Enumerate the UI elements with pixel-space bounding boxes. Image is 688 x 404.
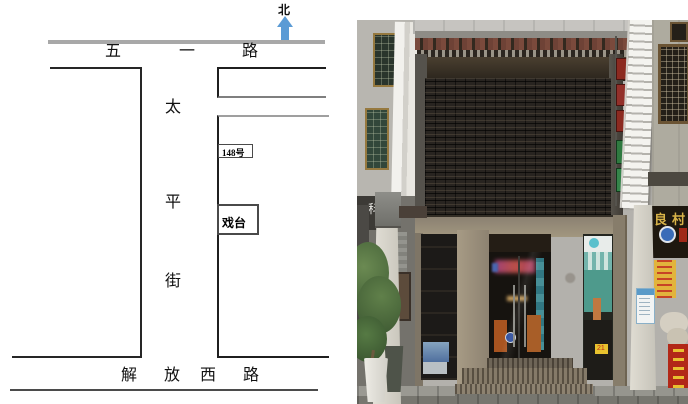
house-number-box: 148号 [218, 144, 253, 158]
north-arrow-icon [277, 16, 293, 27]
rolling-shutter [425, 78, 611, 218]
liangcun-sign-label: 良村 [654, 209, 688, 228]
road-line-jiefang [10, 389, 318, 391]
person-figure [593, 298, 601, 322]
stage-box: 戏台 [217, 204, 259, 235]
road-bottom-char: 解 [121, 368, 137, 384]
notice-header-band [637, 289, 654, 295]
road-bottom-char: 放 [164, 368, 180, 384]
right-small-window [670, 22, 688, 42]
right-awning-bar [648, 172, 688, 186]
road-top-char: 路 [242, 44, 258, 60]
liangcun-red-tab [679, 228, 687, 242]
roof-tile-row [415, 38, 635, 50]
red-promo-sign [668, 344, 688, 388]
teal-logo-circle [589, 238, 599, 248]
price-tag: 21 [595, 344, 608, 354]
stage-label: 戏台 [222, 214, 246, 231]
storefront-photo: 科 [357, 20, 688, 404]
left-window-lower [365, 108, 389, 170]
liangcun-signboard: 良村 [650, 206, 688, 258]
utility-box [375, 192, 401, 228]
notice-paper [636, 288, 655, 324]
roof-ridge [415, 31, 635, 38]
street-char: 街 [165, 274, 181, 290]
yellow-menu-sign [654, 260, 676, 298]
west-block-outline [50, 67, 142, 357]
west-block-bottom-line [12, 356, 142, 358]
road-bottom-char: 路 [243, 368, 259, 384]
figure-canvas: 北 五 一 路 148号 戏台 太 平 街 解 放 西 路 [0, 0, 688, 404]
road-bottom-char: 西 [200, 368, 216, 384]
roof-eave-zigzag [417, 50, 633, 57]
sign-bracket [399, 206, 427, 218]
road-top-char: 五 [105, 44, 121, 60]
right-lattice-window [658, 44, 688, 124]
street-char: 平 [165, 195, 181, 211]
notice-text-lines [639, 298, 650, 318]
door-head-sign [489, 234, 551, 252]
street-char: 太 [165, 100, 181, 116]
road-top-char: 一 [179, 44, 195, 60]
liangcun-logo-icon [659, 226, 676, 243]
street-map-diagram: 北 五 一 路 148号 戏台 太 平 街 解 放 西 路 [0, 0, 344, 404]
blue-crates [423, 342, 449, 362]
east-upper-block-outline [217, 67, 326, 98]
price-tag-label: 21 [597, 345, 605, 352]
step-upper [462, 368, 587, 384]
storefront-right-edge [613, 215, 627, 390]
tea-shop-text-band [584, 252, 612, 270]
white-box [423, 362, 447, 374]
left-pillar [457, 230, 489, 390]
house-number-label: 148号 [222, 146, 245, 159]
